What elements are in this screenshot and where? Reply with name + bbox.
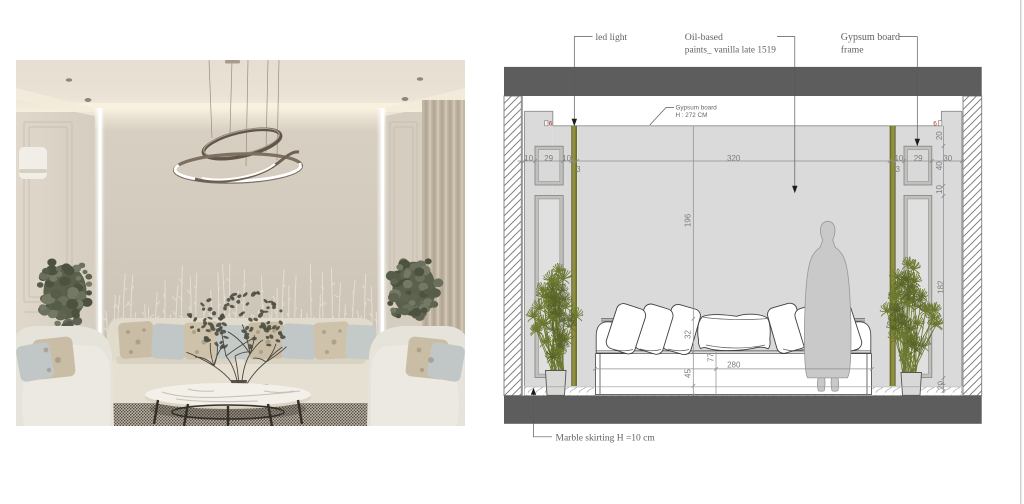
- svg-text:40: 40: [935, 161, 944, 170]
- svg-text:6: 6: [549, 121, 553, 128]
- svg-text:Oil-based: Oil-based: [685, 32, 723, 43]
- svg-text:30: 30: [943, 154, 952, 163]
- svg-text:196: 196: [684, 213, 693, 227]
- svg-text:182: 182: [937, 280, 946, 294]
- svg-text:45: 45: [684, 369, 693, 378]
- svg-text:led light: led light: [596, 32, 628, 43]
- svg-text:paints_ vanilla late 1519: paints_ vanilla late 1519: [685, 46, 776, 56]
- svg-text:10: 10: [562, 154, 571, 163]
- svg-text:Gypsum board: Gypsum board: [676, 105, 718, 112]
- svg-text:10: 10: [935, 185, 944, 194]
- svg-text:20: 20: [935, 131, 944, 140]
- svg-text:frame: frame: [841, 45, 864, 56]
- svg-text:10: 10: [894, 154, 903, 163]
- svg-text:280: 280: [727, 361, 741, 370]
- svg-text:Gypsum board: Gypsum board: [841, 32, 900, 43]
- svg-text:320: 320: [727, 154, 741, 163]
- svg-text:6: 6: [933, 121, 937, 128]
- svg-text:32: 32: [684, 330, 693, 339]
- svg-text:3: 3: [576, 165, 581, 174]
- svg-text:H : 272 CM: H : 272 CM: [676, 112, 708, 119]
- svg-text:29: 29: [914, 154, 923, 163]
- svg-text:29: 29: [544, 154, 553, 163]
- svg-text:Marble skirting H =10 cm: Marble skirting H =10 cm: [556, 433, 656, 443]
- svg-text:77: 77: [706, 353, 715, 362]
- svg-text:10: 10: [524, 154, 533, 163]
- svg-text:20: 20: [937, 380, 946, 389]
- svg-text:3: 3: [895, 165, 900, 174]
